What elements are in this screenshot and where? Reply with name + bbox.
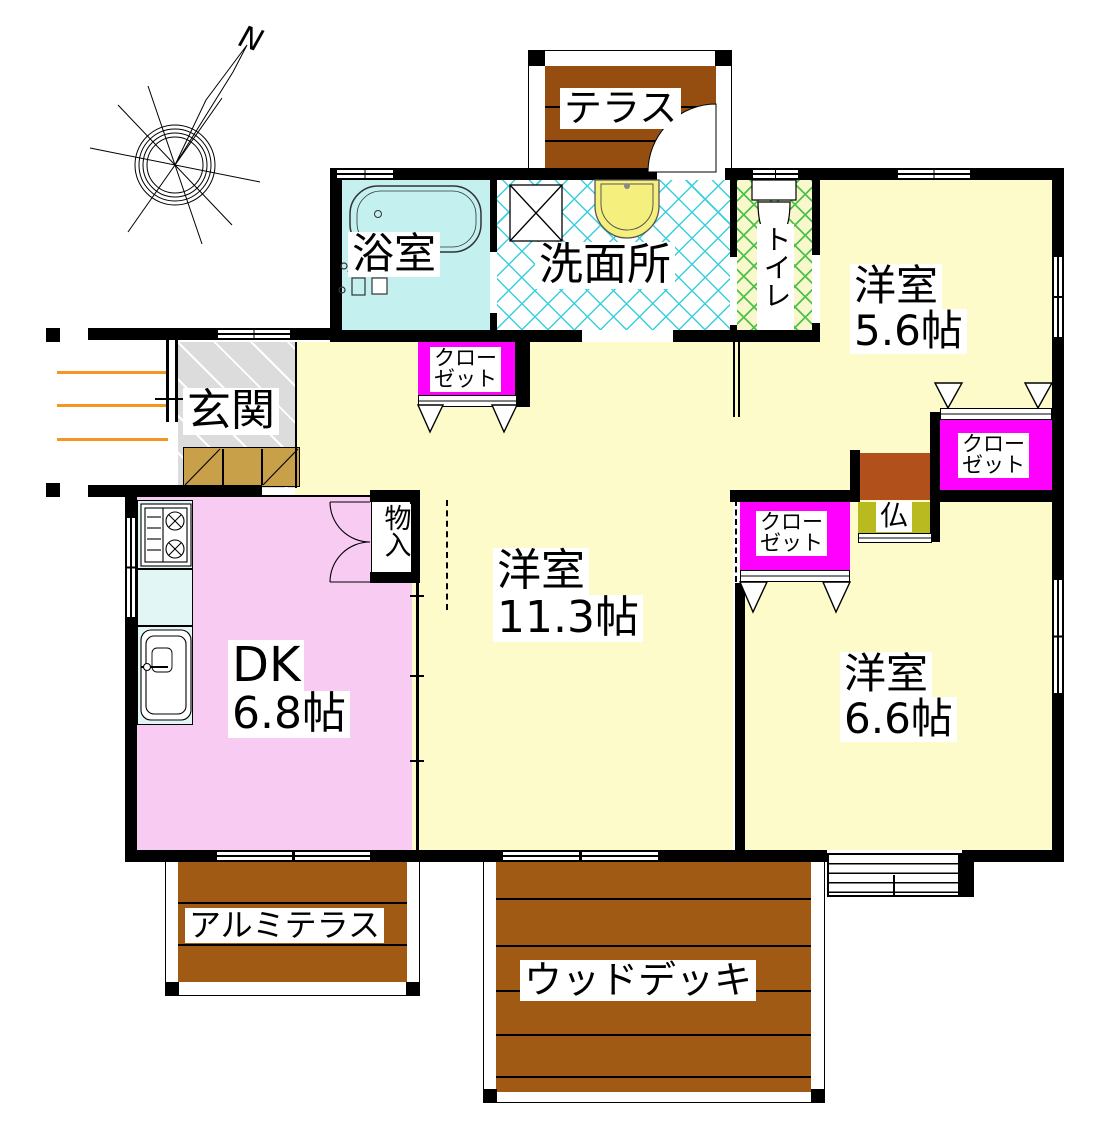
butsudan-door [858, 533, 932, 543]
wall [730, 490, 858, 502]
alumi-plank-line [178, 944, 407, 946]
counter-box [860, 453, 930, 500]
alumi-plank-line [178, 902, 407, 904]
deck-plank-line [496, 1076, 811, 1078]
wall [675, 330, 820, 342]
shoe-cabinet-divider [261, 449, 263, 485]
washroom-door [580, 330, 675, 342]
wall [735, 583, 745, 850]
alumi-terrace-post [165, 982, 179, 996]
bath-label: 浴室 [348, 232, 440, 277]
room-56-size: 5.6帖 [850, 309, 967, 354]
wood-deck-post [811, 1089, 825, 1103]
kitchen-divider [138, 568, 192, 570]
wall [370, 490, 412, 502]
dk-label: DK 6.8帖 [228, 640, 350, 738]
kitchen-window [125, 518, 137, 617]
dk-terrace-window [217, 850, 370, 862]
wall [88, 328, 218, 340]
open-doorway-line [733, 340, 735, 417]
shoe-cabinet-divider [222, 449, 224, 485]
closet-66-line2: ゼット [760, 531, 823, 555]
porch-post [46, 483, 60, 497]
porch-post [46, 328, 60, 342]
wall [658, 850, 827, 862]
wood-deck-label: ウッドデッキ [520, 960, 756, 1001]
approach-line [57, 404, 168, 407]
wall [490, 180, 497, 250]
shoe-cabinet [183, 447, 300, 487]
deck-plank-line [496, 898, 811, 900]
room56-top-window [898, 168, 970, 180]
approach-line [57, 371, 168, 374]
alumi-terrace-label: アルミテラス [185, 908, 384, 943]
dk-partition-line [416, 583, 419, 850]
terrace-label: テラス [560, 88, 681, 129]
terrace-door-gap [655, 168, 727, 180]
room-66-name: 洋室 [840, 652, 932, 697]
wall [125, 850, 217, 862]
toilet-door [730, 255, 737, 327]
room-66-size: 6.6帖 [840, 697, 957, 742]
closet-56-label: クロー ゼット [958, 433, 1029, 478]
closet-56-line1: クロー [962, 432, 1025, 456]
compass-icon [90, 45, 260, 244]
compass-north-label: N [235, 19, 267, 59]
closet-113-door [418, 395, 517, 407]
terrace-post [528, 50, 545, 66]
washroom-label: 洗面所 [535, 242, 675, 289]
wall [125, 497, 137, 520]
room113-deck-window [503, 850, 658, 862]
closet-56-line2: ゼット [962, 453, 1025, 477]
closet-56-door [940, 408, 1052, 420]
bath-door [490, 250, 497, 315]
partition-tick [410, 675, 424, 677]
wall [330, 330, 580, 342]
wall [812, 180, 820, 253]
hanging-wall-dashed-line [735, 500, 737, 582]
wall [125, 615, 137, 862]
room56-door [812, 253, 820, 325]
wall [490, 315, 497, 330]
room-113-name: 洋室 [493, 548, 589, 595]
room-113-size: 11.3帖 [493, 595, 643, 642]
wall [370, 850, 503, 862]
wall [930, 412, 940, 542]
wall [290, 328, 335, 340]
room-113-label: 洋室 11.3帖 [493, 548, 643, 642]
dk-name: DK [228, 640, 304, 691]
wall [1052, 337, 1064, 580]
entrance-label: 玄関 [183, 388, 279, 435]
wall [410, 490, 420, 583]
wall [1052, 168, 1064, 257]
wall [727, 168, 753, 180]
terrace-plank-line [545, 140, 716, 142]
closet-66-line1: クロー [760, 510, 823, 534]
approach-line [57, 438, 168, 441]
wall [515, 330, 530, 407]
room-56-name: 洋室 [850, 264, 942, 309]
closet-66-label: クロー ゼット [756, 511, 827, 556]
room66-side-window [1052, 580, 1064, 693]
wall [970, 168, 1064, 180]
bath-window [337, 168, 393, 180]
wall [798, 168, 898, 180]
alumi-terrace-post [406, 982, 420, 996]
wall [1052, 693, 1064, 862]
toilet-window [753, 168, 798, 180]
wall [330, 168, 342, 342]
wood-deck-post [483, 1089, 497, 1103]
closet-113-line1: クロー [434, 346, 497, 370]
toilet-label: トイレ [757, 224, 794, 330]
entrance-window [218, 328, 290, 340]
terrace-post [715, 50, 732, 66]
partition-tick [410, 595, 424, 597]
storage-label: 物入 [379, 504, 411, 572]
wall [730, 180, 737, 255]
entrance-door [166, 336, 169, 422]
closet-113-label: クロー ゼット [430, 347, 501, 392]
kitchen-divider [138, 625, 192, 627]
floorplan: N [0, 0, 1104, 1142]
dk-size: 6.8帖 [228, 691, 350, 738]
partition-tick [410, 760, 424, 762]
steps-side-post [960, 853, 974, 897]
room-66-label: 洋室 6.6帖 [840, 652, 957, 742]
hanging-wall-dashed-line [446, 500, 448, 610]
wall [962, 850, 1064, 862]
wall [812, 325, 820, 342]
steps-divider [893, 875, 895, 897]
wall [393, 168, 655, 180]
wall [370, 572, 412, 583]
closet-113-line2: ゼット [434, 367, 497, 391]
open-doorway-line [738, 340, 740, 417]
room-56-label: 洋室 5.6帖 [850, 264, 967, 354]
deck-plank-line [496, 945, 811, 947]
kitchen-counter [137, 500, 193, 725]
room56-side-window [1052, 257, 1064, 337]
hall-entrance-line [295, 342, 297, 488]
butsudan-label: 仏 [876, 501, 912, 532]
wall [88, 485, 262, 497]
closet-66-door [740, 570, 850, 582]
wall [850, 450, 860, 502]
deck-plank-line [496, 1034, 811, 1036]
entrance-door [175, 336, 178, 422]
wall [930, 490, 1052, 502]
hall-dk-line [262, 495, 370, 497]
